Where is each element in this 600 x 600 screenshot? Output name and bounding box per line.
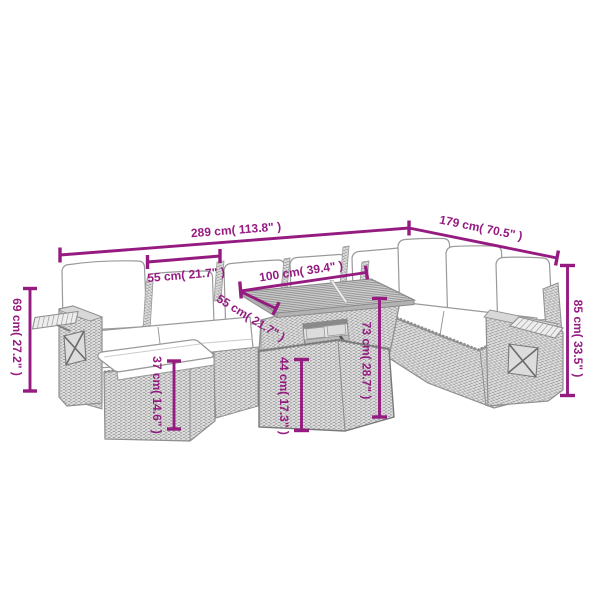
svg-text:69 cm( 27.2" ): 69 cm( 27.2" ) [10, 298, 24, 376]
svg-text:289 cm( 113.8" ): 289 cm( 113.8" ) [190, 219, 281, 240]
svg-text:179 cm( 70.5" ): 179 cm( 70.5" ) [438, 213, 524, 244]
svg-text:37 cm( 14.6" ): 37 cm( 14.6" ) [150, 356, 164, 434]
svg-text:73 cm( 28.7" ): 73 cm( 28.7" ) [360, 322, 374, 400]
svg-text:44 cm( 17.3" ): 44 cm( 17.3" ) [277, 357, 291, 435]
svg-text:85 cm( 33.5" ): 85 cm( 33.5" ) [571, 300, 585, 378]
